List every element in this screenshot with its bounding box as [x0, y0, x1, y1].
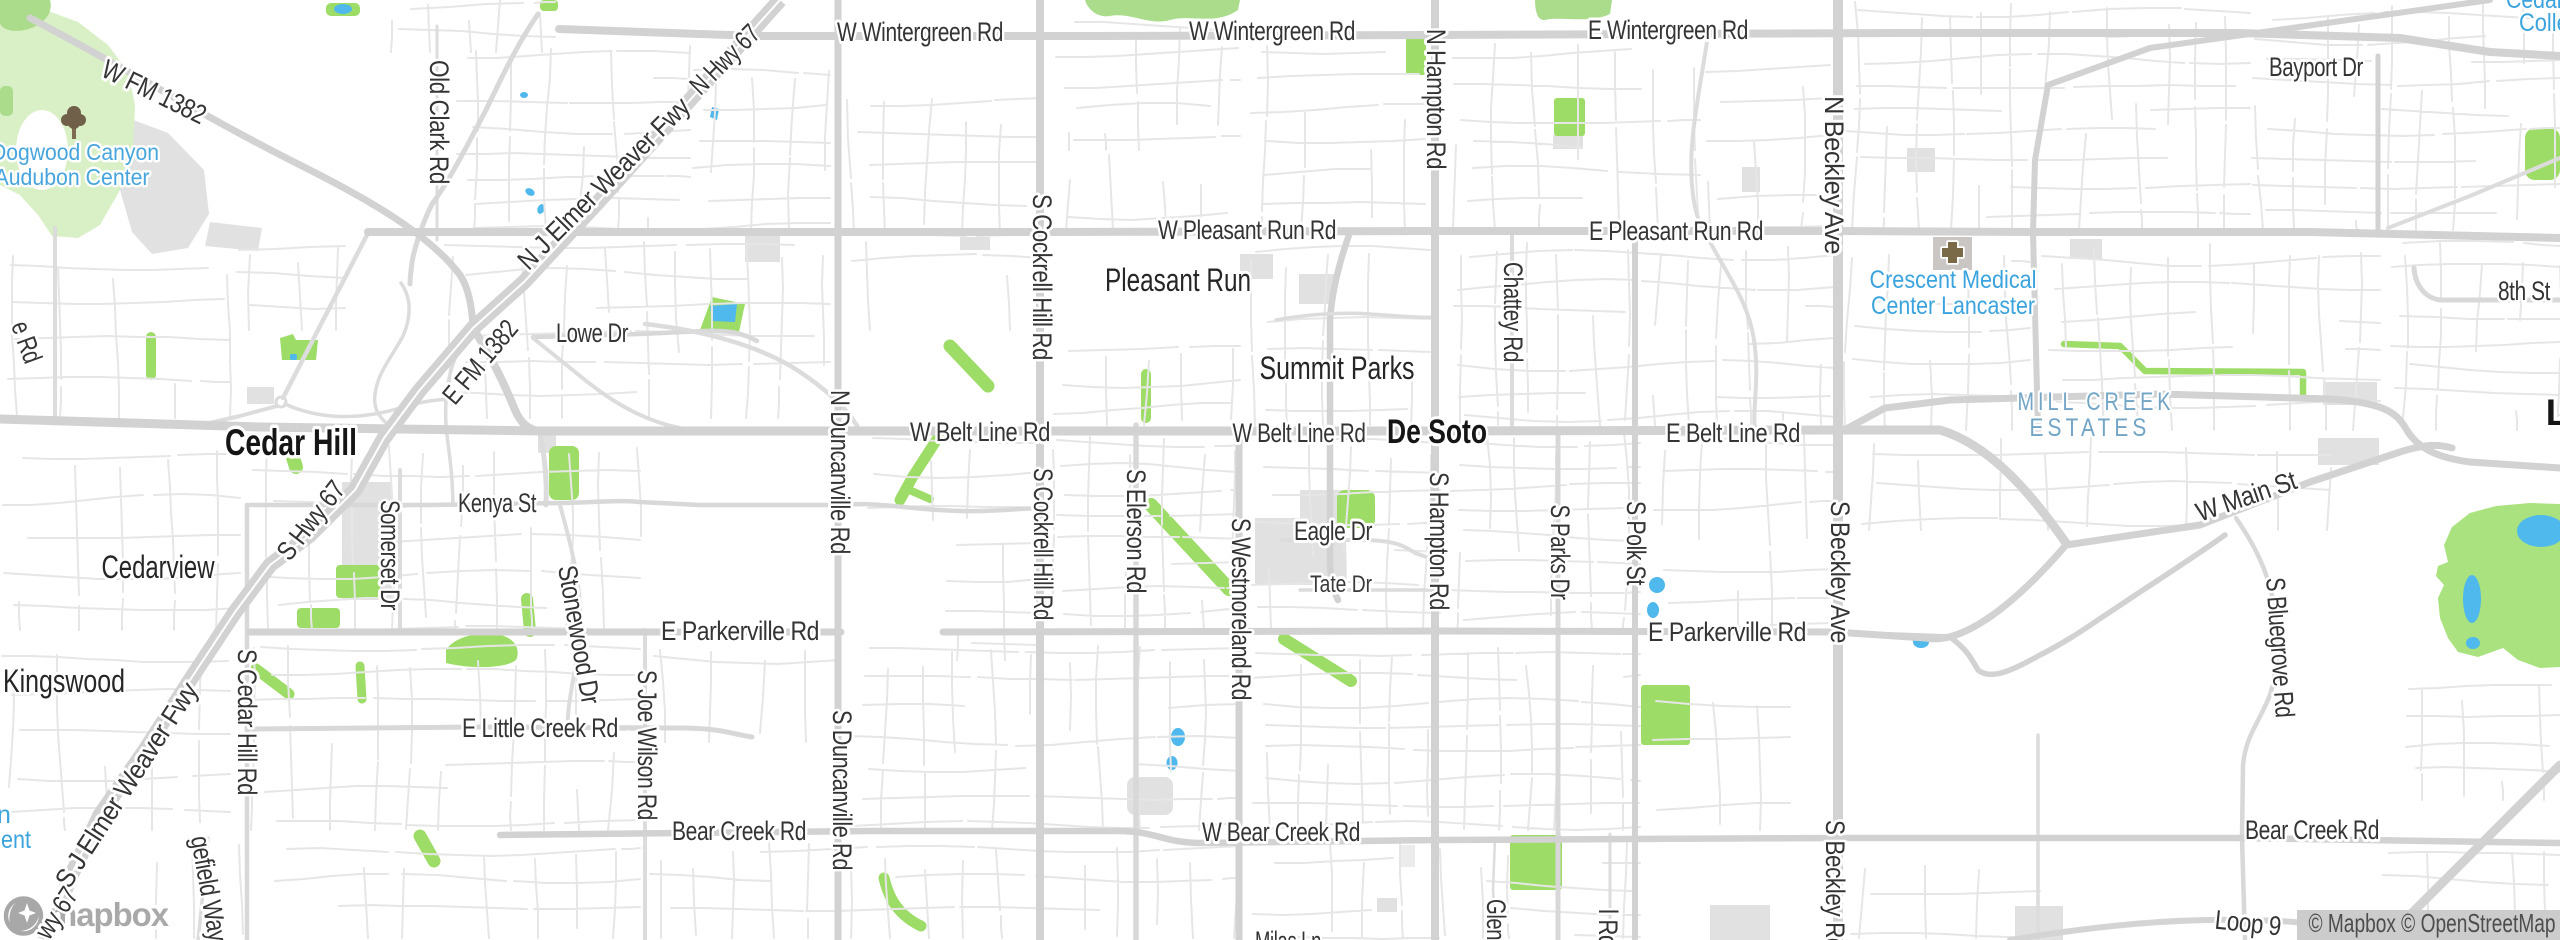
svg-text:W Pleasant Run Rd: W Pleasant Run Rd [1158, 215, 1336, 245]
svg-text:Bayport Dr: Bayport Dr [2269, 52, 2363, 82]
svg-text:Lowe Dr: Lowe Dr [556, 318, 628, 348]
svg-text:W Wintergreen Rd: W Wintergreen Rd [1189, 16, 1355, 46]
svg-text:8th St: 8th St [2498, 276, 2551, 306]
svg-text:Kingswood: Kingswood [3, 663, 125, 699]
svg-text:Kenya St: Kenya St [458, 488, 537, 518]
svg-text:MILL CREEK: MILL CREEK [2018, 388, 2175, 416]
svg-text:Summit Parks: Summit Parks [1260, 350, 1415, 386]
svg-text:Milas Ln: Milas Ln [1255, 926, 1321, 940]
svg-text:E Little Creek Rd: E Little Creek Rd [462, 713, 618, 743]
svg-text:W Belt Line Rd: W Belt Line Rd [1233, 418, 1366, 448]
svg-text:S Beckley Ave: S Beckley Ave [1825, 501, 1855, 643]
svg-text:S Duncanville Rd: S Duncanville Rd [827, 710, 857, 870]
svg-text:S Cedar Hill Rd: S Cedar Hill Rd [232, 649, 262, 795]
svg-text:Somerset Dr: Somerset Dr [375, 500, 405, 610]
svg-text:Tate Dr: Tate Dr [1310, 571, 1372, 598]
svg-text:© Mapbox © OpenStreetMap: © Mapbox © OpenStreetMap [2309, 908, 2556, 938]
svg-text:Cedar Hill: Cedar Hill [225, 422, 357, 463]
svg-text:Glenn: Glenn [1481, 899, 1511, 940]
svg-text:S Cockrell Hill Rd: S Cockrell Hill Rd [1028, 468, 1058, 620]
svg-text:Eagle Dr: Eagle Dr [1294, 516, 1372, 546]
svg-text:W Belt Line Rd: W Belt Line Rd [910, 417, 1050, 447]
svg-text:E Belt Line Rd: E Belt Line Rd [1666, 418, 1800, 448]
svg-text:E Parkerville Rd: E Parkerville Rd [661, 616, 819, 646]
svg-text:Old Clark Rd: Old Clark Rd [424, 60, 454, 184]
svg-text:E Wintergreen Rd: E Wintergreen Rd [1588, 15, 1748, 45]
svg-text:N Duncanville Rd: N Duncanville Rd [825, 390, 855, 554]
svg-text:L: L [2546, 392, 2560, 433]
svg-text:E Pleasant Run Rd: E Pleasant Run Rd [1589, 216, 1763, 246]
svg-text:Cedarview: Cedarview [102, 549, 216, 585]
svg-text:N Hampton Rd: N Hampton Rd [1421, 29, 1451, 169]
svg-text:S Beckley Rd: S Beckley Rd [1820, 820, 1850, 940]
svg-text:ESTATES: ESTATES [2030, 414, 2151, 442]
svg-text:Audubon Center: Audubon Center [0, 164, 150, 190]
svg-text:S Polk St: S Polk St [1621, 501, 1651, 586]
svg-text:Crescent Medical: Crescent Medical [1870, 266, 2037, 294]
svg-text:W Wintergreen Rd: W Wintergreen Rd [837, 17, 1003, 47]
svg-text:De Soto: De Soto [1387, 413, 1487, 451]
svg-text:S Westmoreland Rd: S Westmoreland Rd [1226, 518, 1256, 700]
svg-text:N Beckley Ave: N Beckley Ave [1819, 96, 1849, 254]
svg-text:S Cockrell Hill Rd: S Cockrell Hill Rd [1027, 194, 1057, 360]
svg-text:Bear Creek Rd: Bear Creek Rd [2245, 815, 2379, 845]
svg-text:Center Lancaster: Center Lancaster [1871, 292, 2035, 320]
svg-text:E Parkerville Rd: E Parkerville Rd [1648, 617, 1806, 647]
svg-text:ent: ent [1, 826, 31, 854]
svg-text:W Bear Creek Rd: W Bear Creek Rd [1202, 817, 1360, 847]
svg-text:College: College [2519, 9, 2560, 37]
svg-text:S Parks Dr: S Parks Dr [1545, 505, 1575, 600]
svg-text:Dogwood Canyon: Dogwood Canyon [0, 139, 159, 165]
svg-text:Bear Creek Rd: Bear Creek Rd [672, 816, 806, 846]
svg-text:Pleasant Run: Pleasant Run [1105, 262, 1251, 298]
svg-text:S Elerson Rd: S Elerson Rd [1121, 469, 1151, 593]
svg-text:n: n [0, 801, 11, 829]
svg-text:Chattey Rd: Chattey Rd [1498, 262, 1528, 362]
svg-text:l Rd: l Rd [1593, 909, 1623, 940]
svg-text:S Joe Wilson Rd: S Joe Wilson Rd [632, 670, 662, 820]
svg-text:Loop 9: Loop 9 [2214, 905, 2283, 940]
svg-text:S Hampton Rd: S Hampton Rd [1424, 472, 1454, 610]
